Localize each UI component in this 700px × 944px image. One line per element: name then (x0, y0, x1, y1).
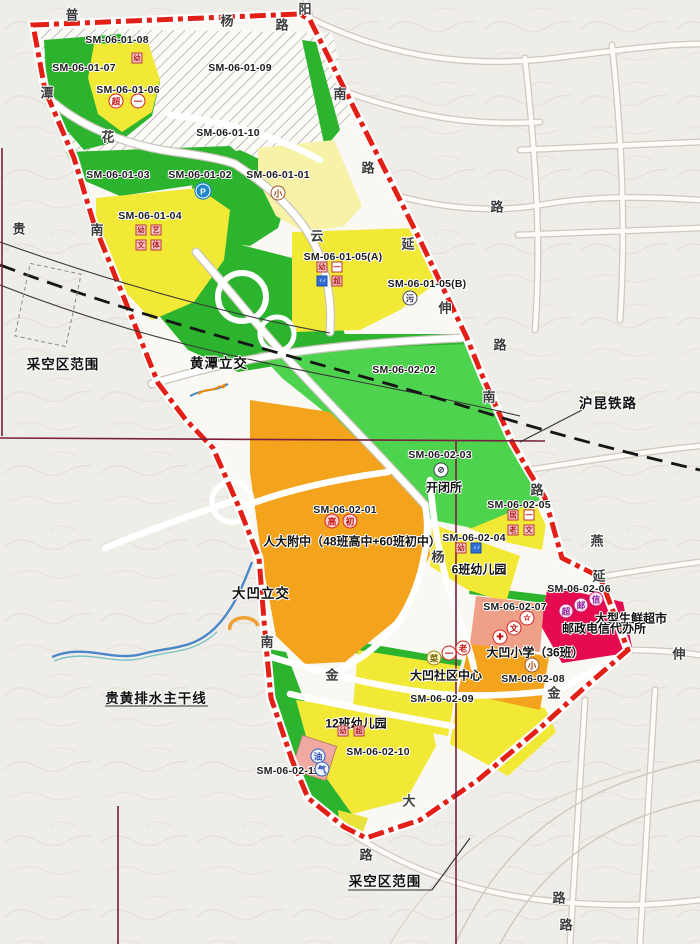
planning-map: SM-06-01-08 SM-06-01-07 SM-06-01-06 SM-0… (0, 0, 700, 944)
parcel-02-07 (470, 596, 544, 652)
map-graphics (0, 0, 700, 944)
